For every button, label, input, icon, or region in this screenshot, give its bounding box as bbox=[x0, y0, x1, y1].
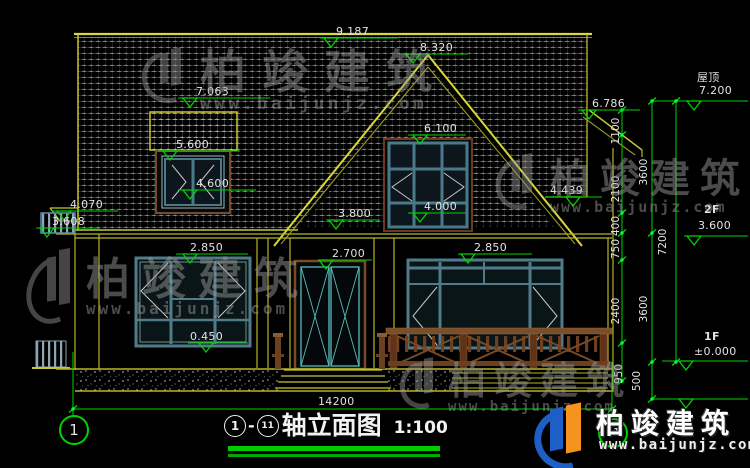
level-left-canopy: 3.608 bbox=[52, 215, 85, 228]
left-stair-railing bbox=[32, 341, 70, 368]
window-right bbox=[408, 260, 562, 348]
watermark-logo-icon bbox=[496, 152, 544, 206]
dim-750: 750 bbox=[610, 219, 622, 279]
level-dormer-win-sill: 4.600 bbox=[196, 177, 229, 190]
dim-2400: 2400 bbox=[610, 281, 622, 341]
roof-label: 屋顶 bbox=[697, 69, 720, 85]
dim-total-width: 14200 bbox=[318, 395, 355, 408]
brand-url: www.baijunjz.com bbox=[599, 437, 750, 453]
roof-level: 7.200 bbox=[699, 84, 732, 97]
level-door-top: 2.700 bbox=[332, 247, 365, 260]
dim-3600-lower: 3600 bbox=[638, 279, 650, 339]
floor1-label: 1F bbox=[704, 330, 720, 343]
title-underline-thick bbox=[228, 446, 440, 451]
drawing-scale: 1:100 bbox=[394, 418, 448, 438]
swoosh-icon bbox=[523, 399, 607, 468]
title-underline-thin bbox=[228, 454, 440, 457]
brand-name: 柏竣建筑 bbox=[596, 402, 736, 442]
brand-logo: 柏竣建筑 www.baijunjz.com bbox=[528, 400, 750, 464]
title-axis-end-circle: 11 bbox=[257, 415, 279, 437]
title-block: 1 - 11 轴立面图 1:100 bbox=[224, 413, 448, 438]
watermark-logo-icon bbox=[142, 46, 194, 98]
watermark-left: 柏竣建筑 www.baijunjz.com bbox=[86, 243, 310, 318]
dormer bbox=[150, 112, 237, 213]
watermark-top: 柏竣建筑 www.baijunjz.com bbox=[200, 36, 448, 114]
level-window-left-sill: 0.450 bbox=[190, 330, 223, 343]
title-axis-start-circle: 1 bbox=[224, 415, 246, 437]
floor2-level: 3.600 bbox=[698, 219, 731, 232]
level-gable-win-sill: 4.000 bbox=[424, 200, 457, 213]
level-dormer-win-top: 5.600 bbox=[176, 138, 209, 151]
level-left-eave: 4.070 bbox=[70, 198, 103, 211]
axis-marker-left: 1 bbox=[59, 415, 89, 445]
dim-total-height: 7200 bbox=[657, 212, 669, 272]
drawing-title: 轴立面图 bbox=[282, 413, 382, 438]
cad-elevation-drawing: 9.187 8.320 7.063 5.600 4.600 4.070 3.60… bbox=[0, 0, 750, 468]
watermark-logo-icon bbox=[400, 356, 444, 404]
level-upper-wall: 3.800 bbox=[338, 207, 371, 220]
watermark-right: 柏竣建筑 www.baijunjz.com bbox=[550, 146, 750, 216]
level-gable-win-top: 6.100 bbox=[424, 122, 457, 135]
watermark-logo-icon bbox=[28, 246, 84, 322]
floor1-level: ±0.000 bbox=[694, 345, 737, 358]
level-window-right-top: 2.850 bbox=[474, 241, 507, 254]
brand-logo-icon bbox=[532, 402, 594, 460]
gable-window bbox=[384, 139, 472, 231]
title-separator: - bbox=[248, 416, 255, 435]
